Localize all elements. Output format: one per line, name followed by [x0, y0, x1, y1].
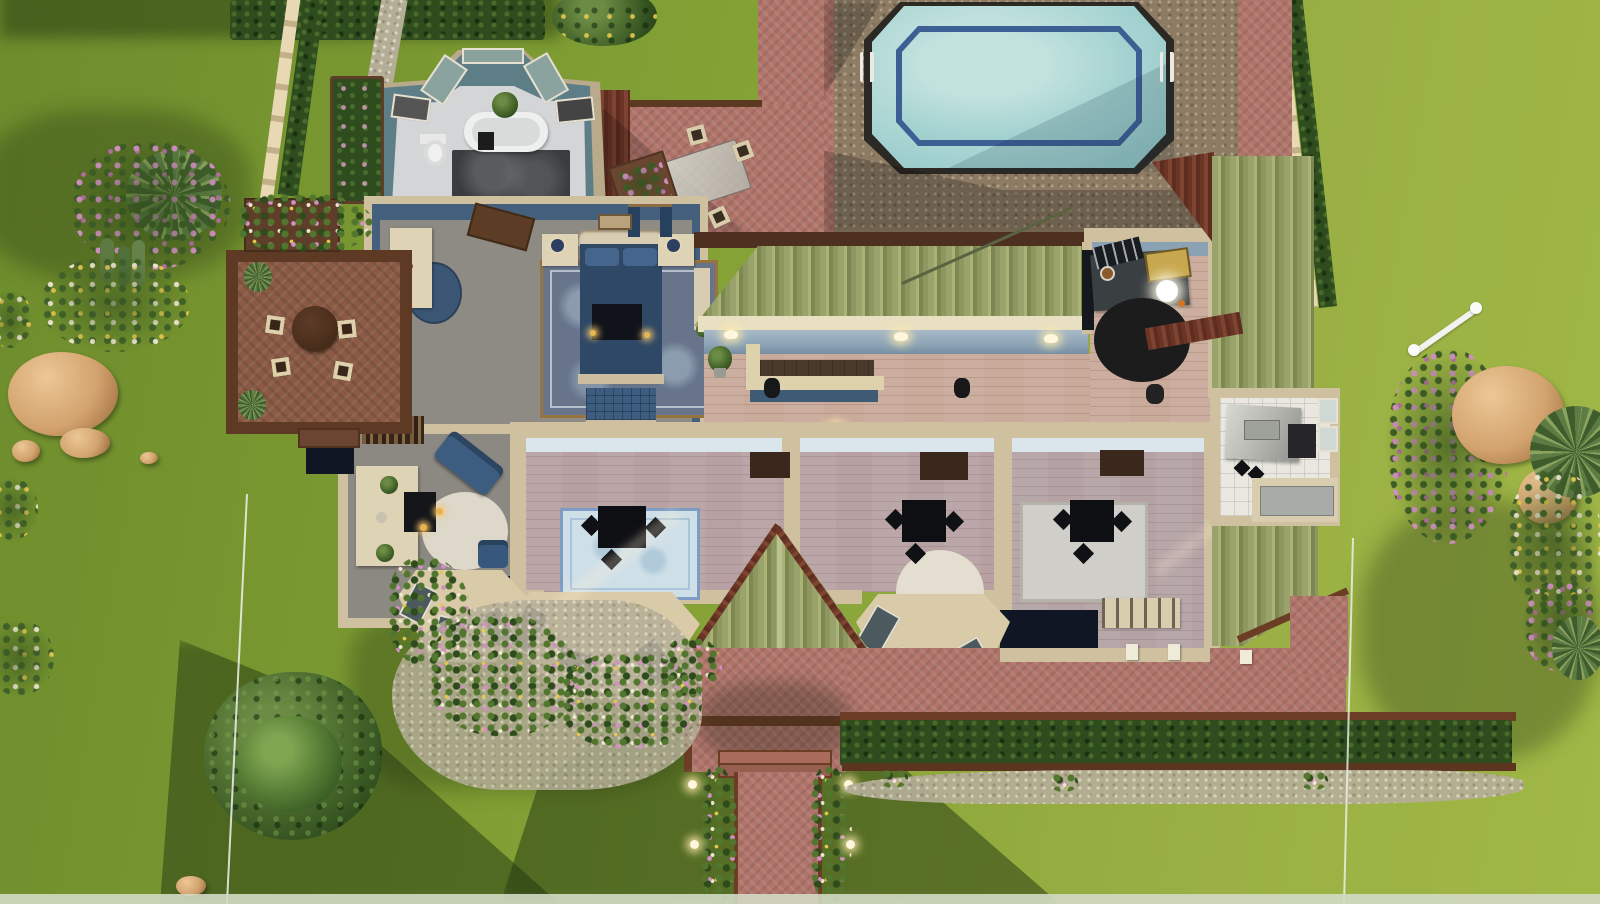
room2-right-wall [994, 422, 1012, 612]
porch-post [1126, 644, 1138, 660]
fruit-bush-foliage [552, 0, 657, 46]
rock[interactable] [140, 452, 158, 464]
room2-wall-face [800, 438, 994, 452]
pink-flower-patch[interactable] [70, 140, 230, 270]
study-stool[interactable] [1146, 384, 1164, 404]
gravel-plants[interactable] [1050, 772, 1078, 792]
long-hedge[interactable] [840, 720, 1512, 766]
bed-pillow [585, 248, 619, 266]
survey-rod-knob [1470, 302, 1482, 314]
bathroom-rug[interactable] [452, 150, 570, 198]
wildflower-patch[interactable] [0, 478, 38, 540]
console-plant[interactable] [380, 476, 398, 494]
footboard-lamp[interactable] [590, 330, 596, 336]
boulder[interactable] [8, 352, 118, 436]
skylight-right [555, 96, 595, 124]
rose-border-left[interactable] [698, 764, 738, 904]
console-bowl [376, 512, 387, 523]
deck-table[interactable] [292, 306, 338, 352]
table-lamp[interactable] [551, 239, 564, 252]
blueprint-paper[interactable] [1144, 247, 1192, 283]
gravel-plants[interactable] [880, 768, 908, 788]
path-light[interactable] [688, 780, 697, 789]
survey-rod-knob [1408, 344, 1420, 356]
wildflower-patch[interactable] [0, 620, 54, 696]
room1-wall-face [526, 438, 782, 452]
palm-fronds[interactable] [1552, 616, 1600, 680]
bar-stool[interactable] [764, 378, 780, 398]
bed-bench[interactable] [586, 388, 656, 423]
bar-counter-top [760, 360, 874, 376]
garden-bed-left-of-bathroom[interactable] [330, 76, 384, 204]
floor-lamp[interactable] [420, 524, 427, 531]
rooms-top-wall [510, 422, 1220, 438]
deck-chair[interactable] [333, 361, 354, 382]
wall-art[interactable] [598, 214, 632, 230]
tree-crown [238, 716, 342, 812]
bar-roof [694, 246, 1090, 326]
path-light[interactable] [846, 840, 855, 849]
bar-roof-trim [694, 232, 1090, 248]
footboard-lamp[interactable] [644, 332, 650, 338]
right-roof-upper [1212, 156, 1314, 396]
deck-step [298, 428, 360, 448]
desk-lamp[interactable] [1156, 280, 1178, 302]
floor-lamp[interactable] [436, 508, 443, 515]
counter-top [1260, 486, 1334, 516]
desk[interactable] [1070, 500, 1114, 542]
wildflower-patch[interactable] [40, 256, 190, 352]
gravel-band [844, 770, 1524, 804]
bed-footboard [578, 374, 664, 384]
coffee-mug[interactable] [1100, 266, 1115, 281]
porch-post [1240, 650, 1252, 664]
window-curtains[interactable] [628, 204, 672, 237]
deck-plant[interactable] [244, 262, 272, 292]
wall-sconce[interactable] [1044, 334, 1058, 343]
table-lamp[interactable] [667, 239, 680, 252]
plant-pot [714, 368, 726, 378]
ceiling-panel [920, 452, 968, 480]
bed-wall-tv[interactable] [592, 304, 642, 340]
rock[interactable] [12, 440, 40, 462]
deck-chair[interactable] [265, 315, 285, 335]
porch-right-ext [1290, 596, 1348, 676]
ceiling-panel [750, 452, 790, 478]
path-light[interactable] [690, 840, 699, 849]
island-sink [1244, 420, 1280, 440]
wildflower-patch[interactable] [0, 290, 32, 348]
wall-sconce[interactable] [894, 332, 908, 341]
deck-chair[interactable] [271, 357, 291, 377]
study-wall-top [1084, 228, 1218, 242]
stove[interactable] [1288, 424, 1316, 458]
bed-pillow [623, 248, 657, 266]
ceiling-panel [1100, 450, 1144, 476]
toilet[interactable] [424, 140, 446, 166]
bay-window-top[interactable] [462, 48, 524, 64]
pool-ladder-left[interactable] [860, 52, 874, 82]
skylight-left [391, 93, 432, 122]
kitchen-window [1318, 398, 1338, 424]
deck-plant[interactable] [238, 390, 266, 420]
rose-bush[interactable] [428, 614, 580, 736]
wall-sconce[interactable] [724, 330, 738, 339]
bath-caddy[interactable] [478, 132, 494, 150]
pool-ladder-right[interactable] [1160, 52, 1174, 82]
fruit-bush-top-center[interactable] [552, 0, 657, 46]
rock[interactable] [60, 428, 110, 458]
bar-stool[interactable] [954, 378, 970, 398]
gravel-plants[interactable] [1300, 770, 1328, 790]
porch-post [1168, 644, 1180, 660]
deck-flower-bed[interactable] [236, 192, 374, 254]
brick-patio-top [758, 0, 824, 110]
bottom-sidewalk-strip [0, 894, 1600, 904]
desk[interactable] [902, 500, 946, 542]
kitchen-window [1318, 426, 1338, 452]
room1-left-wall [510, 422, 526, 606]
console-plant[interactable] [376, 544, 394, 562]
deck-chair[interactable] [337, 319, 357, 339]
bathroom-plant[interactable] [492, 92, 518, 118]
desk-accent [1178, 300, 1185, 307]
room3-console[interactable] [1102, 598, 1180, 628]
armchair[interactable] [478, 540, 508, 568]
game-viewport [0, 0, 1600, 904]
rose-bush[interactable] [664, 636, 722, 694]
